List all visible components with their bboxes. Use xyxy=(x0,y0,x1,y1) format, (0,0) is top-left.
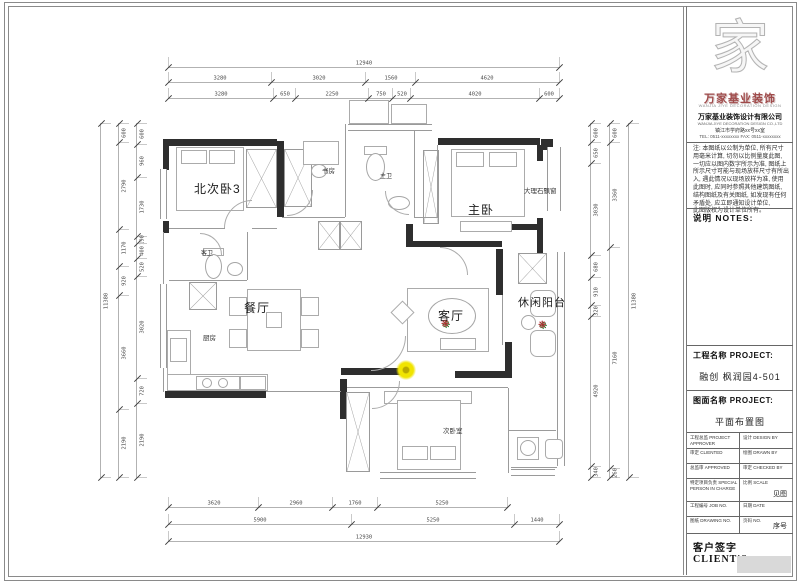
dim-left-total: 11380 xyxy=(100,123,111,478)
dim-segment: 1440 xyxy=(514,514,560,525)
dim-value: 5250 xyxy=(436,500,449,506)
stair-landing xyxy=(391,104,427,124)
dim-left-mid: 6002790117092036602190 xyxy=(118,123,129,478)
dim-value: 910 xyxy=(593,287,599,297)
dim-segment: 2790 xyxy=(118,142,129,229)
dim-segment: 600 xyxy=(590,123,601,142)
table-label: 审定 CLIENTED xyxy=(687,448,740,463)
scale-value: 见图 xyxy=(773,489,787,499)
dim-segment: 11380 xyxy=(628,123,639,478)
dim-segment: 3020 xyxy=(271,72,366,83)
toilet xyxy=(205,254,222,279)
dim-value: 340 xyxy=(593,467,599,477)
dim-value: 3020 xyxy=(312,75,325,81)
dim-segment: 3660 xyxy=(118,295,129,408)
plant-icon: ❋ xyxy=(538,321,546,331)
corner-gray-block xyxy=(737,556,791,573)
dim-value: 11380 xyxy=(103,292,109,308)
dim-value: 2190 xyxy=(139,434,145,447)
table-label: 审定 CHECKED BY xyxy=(740,463,793,478)
dim-value: 1560 xyxy=(384,75,397,81)
closet-xbox xyxy=(423,150,439,224)
bay-window xyxy=(547,147,561,211)
dim-segment: 3620 xyxy=(168,497,258,508)
dim-value: 3280 xyxy=(213,75,226,81)
dim-value: 600 xyxy=(121,128,127,138)
room-label-study: 书房 xyxy=(322,165,335,175)
chair xyxy=(301,329,319,348)
partition-line xyxy=(163,232,164,284)
project-name-value: 融创 枫润园4-501 xyxy=(687,370,793,383)
dim-segment: 2960 xyxy=(258,497,332,508)
dim-segment: 920 xyxy=(118,266,129,295)
dim-segment: 680 xyxy=(590,255,601,277)
dim-segment: 910 xyxy=(590,277,601,306)
dim-segment: 600 xyxy=(609,123,620,142)
dim-segment: 260 xyxy=(609,468,620,478)
room-label-guest-bath: 客卫 xyxy=(201,248,213,257)
dim-segment: 720 xyxy=(136,378,147,403)
title-table-row: 工程总监 PROJECT APPROVER 设计 DESIGN BY xyxy=(687,433,793,449)
drawing-name-value: 平面布置图 xyxy=(687,415,793,428)
dim-left-inner: 600960173019040052030207202190 xyxy=(136,123,147,478)
dim-segment: 5900 xyxy=(168,514,351,525)
dim-segment: 750 xyxy=(368,88,393,99)
dim-value: 7160 xyxy=(612,351,618,364)
table-label: 总监审 APPROVED xyxy=(687,463,740,478)
dim-right-total: 11380 xyxy=(628,123,639,478)
dim-value: 920 xyxy=(121,276,127,286)
plant-icon: ❋ xyxy=(441,320,449,330)
dim-segment: 4920 xyxy=(590,316,601,466)
dim-value: 3020 xyxy=(139,321,145,334)
page-no-value: 序号 xyxy=(773,521,787,531)
dim-value: 5250 xyxy=(426,517,439,523)
dim-value: 5900 xyxy=(253,517,266,523)
highlight-dot xyxy=(396,360,416,380)
dim-value: 720 xyxy=(139,386,145,396)
dim-value: 600 xyxy=(593,128,599,138)
dim-value: 260 xyxy=(612,468,618,478)
dim-bottom-total: 12930 xyxy=(168,531,560,542)
table-label: 比例 SCALE xyxy=(743,480,768,485)
dim-value: 2960 xyxy=(289,500,302,506)
burner xyxy=(202,378,212,388)
dim-segment: 2190 xyxy=(118,409,129,478)
dim-top-row2: 3280302015604620 xyxy=(168,72,560,83)
company-phone: TEL: 0511-xxxxxxxx FAX: 0511-xxxxxxxx xyxy=(687,134,793,139)
pillow xyxy=(489,152,517,167)
logo-brush-glyph: 家 xyxy=(687,16,793,80)
partition-line xyxy=(502,295,503,345)
wall-segment xyxy=(406,241,502,247)
dim-segment: 650 xyxy=(590,142,601,163)
closet-xbox xyxy=(346,392,370,472)
coffee-table xyxy=(440,338,476,350)
dim-segment: 340 xyxy=(590,466,601,478)
dim-segment: 4620 xyxy=(415,72,560,83)
wall-segment xyxy=(163,139,277,146)
table-label: 特定项目负责 SPECIAL PERSON IN CHARGE xyxy=(687,478,740,501)
dim-value: 650 xyxy=(593,148,599,158)
table-label: 绘图 DRAWN BY xyxy=(740,448,793,463)
bench xyxy=(460,221,512,232)
dim-segment: 4020 xyxy=(410,88,539,99)
dim-segment: 600 xyxy=(118,123,129,142)
dim-value: 4620 xyxy=(481,75,494,81)
dim-value: 1170 xyxy=(121,242,127,255)
cabinet-xbox xyxy=(189,282,217,310)
table-label: 比例 SCALE 见图 xyxy=(740,478,793,501)
dim-segment: 1170 xyxy=(118,229,129,266)
chair xyxy=(301,297,319,316)
divider xyxy=(687,142,793,143)
dim-value: 3660 xyxy=(121,346,127,359)
partition-line xyxy=(252,228,277,229)
sink xyxy=(545,439,563,459)
dim-segment: 1730 xyxy=(136,177,147,236)
wall-segment xyxy=(438,138,540,145)
dim-value: 2790 xyxy=(121,180,127,193)
room-label-kitchen: 厨房 xyxy=(203,332,216,342)
dim-value: 600 xyxy=(612,128,618,138)
partition-line xyxy=(282,217,345,218)
pillow xyxy=(402,446,428,460)
room-label-leisure-balcony: 休闲阳台 xyxy=(518,294,566,310)
room-label-master-bedroom: 主卧 xyxy=(468,201,494,218)
stair-landing xyxy=(349,100,389,124)
dim-value: 600 xyxy=(139,129,145,139)
dim-segment: 400 xyxy=(136,243,147,257)
dim-value: 1760 xyxy=(348,500,361,506)
dim-segment: 2250 xyxy=(295,88,368,99)
dim-value: 3030 xyxy=(593,203,599,216)
notes-line: 结构图纸及有关图纸, 如发现有任何 xyxy=(693,193,789,201)
sink xyxy=(227,262,243,276)
table-label: 设计 DESIGN BY xyxy=(740,433,793,448)
dim-value: 12940 xyxy=(356,60,372,66)
dim-segment: 520 xyxy=(392,88,410,99)
room-label-master-bath: 主卫 xyxy=(380,171,392,180)
room-label-second-bedroom: 次卧室 xyxy=(443,425,463,435)
partition-line xyxy=(247,232,248,280)
table-label: 工程总监 PROJECT APPROVER xyxy=(687,433,740,448)
company-name-en: WANJIA JIYE DECORATION DESIGN CO.,LTD xyxy=(687,121,793,126)
dim-value: 520 xyxy=(397,91,407,97)
burner xyxy=(218,378,228,388)
window xyxy=(160,169,167,219)
wall-segment xyxy=(163,146,169,170)
dim-value: 2190 xyxy=(121,437,127,450)
wall-segment xyxy=(277,141,284,217)
window xyxy=(380,472,476,479)
dim-right-mid: 60033607160260 xyxy=(609,123,620,478)
ac-unit-xbox xyxy=(518,253,547,284)
dim-segment: 650 xyxy=(273,88,295,99)
dim-value: 3620 xyxy=(207,500,220,506)
dim-segment: 3020 xyxy=(136,276,147,378)
dim-right-inner: 60065030306809103204920340 xyxy=(590,123,601,478)
dim-segment: 11380 xyxy=(100,123,111,478)
notes-line: 用毫米计算, 切勿以比例量度此图, xyxy=(693,154,789,162)
balcony-table xyxy=(521,315,536,330)
desk xyxy=(303,141,339,165)
title-table-row: 图纸 DRAWING NO. 页码 NO. 序号 xyxy=(687,516,793,534)
dim-value: 680 xyxy=(593,262,599,272)
dim-segment: 5250 xyxy=(377,497,508,508)
partition-line xyxy=(509,430,556,431)
dim-segment: 12930 xyxy=(168,531,560,542)
room-label-north-bedroom3: 北次卧3 xyxy=(194,180,241,197)
wall-segment xyxy=(455,371,512,378)
divider xyxy=(687,390,793,391)
dim-value: 2250 xyxy=(325,91,338,97)
dim-segment: 1560 xyxy=(365,72,414,83)
project-name-label: 工程名称 PROJECT: xyxy=(693,350,773,361)
dim-segment: 7160 xyxy=(609,247,620,468)
dim-value: 3280 xyxy=(215,91,228,97)
drawing-name-label: 图面名称 PROJECT: xyxy=(693,395,773,406)
dim-segment: 3360 xyxy=(609,142,620,246)
window xyxy=(511,469,555,476)
pillow xyxy=(181,150,207,164)
pillow xyxy=(456,152,484,167)
logo-caption: WANJIA JIYE DECORATION DESIGN xyxy=(687,103,793,108)
dim-segment: 600 xyxy=(136,123,147,144)
dim-value: 3360 xyxy=(612,189,618,202)
closet-xbox xyxy=(318,221,341,250)
notes-line: 此图时, 应同时参照其他建筑图纸, xyxy=(693,185,789,193)
wall-segment xyxy=(165,391,266,398)
washer-drum xyxy=(520,440,536,456)
partition-line xyxy=(163,368,164,392)
divider xyxy=(687,208,793,209)
notes-paragraph: 注: 本图纸以公制为单位, 所有尺寸用毫米计算, 切勿以比例量度此图,一切应以图… xyxy=(693,146,789,216)
dim-value: 1440 xyxy=(530,517,543,523)
dim-value: 1730 xyxy=(139,200,145,213)
balcony-chair xyxy=(530,330,556,357)
partition-line xyxy=(169,228,225,229)
dim-segment: 3280 xyxy=(168,88,273,99)
kitchen-sink xyxy=(170,338,187,362)
closet-xbox xyxy=(339,221,362,250)
dim-value: 520 xyxy=(139,262,145,272)
chair xyxy=(229,329,247,348)
pillow xyxy=(430,446,456,460)
table-label: 图纸 DRAWING NO. xyxy=(687,516,740,533)
dim-segment: 1760 xyxy=(332,497,376,508)
table-label: 页码 NO. 序号 xyxy=(740,516,793,533)
dim-top-row3: 328065022507505204020600 xyxy=(168,88,560,99)
title-table-row: 审定 CLIENTED 绘图 DRAWN BY xyxy=(687,448,793,464)
wall-segment xyxy=(496,249,503,295)
table-label: 工程编号 JOB NO. xyxy=(687,501,740,516)
dim-value: 12930 xyxy=(356,534,372,540)
dim-value: 960 xyxy=(139,156,145,166)
dim-value: 600 xyxy=(545,91,555,97)
dim-segment: 600 xyxy=(539,88,560,99)
partition-line xyxy=(511,467,557,468)
drawing-sheet: 北次卧3 主卧 大理石飘窗 书房 主卫 客卫 餐厅 厨房 客厅 休闲阳台 次卧室… xyxy=(0,0,800,584)
dim-segment: 5250 xyxy=(351,514,514,525)
dim-segment: 3280 xyxy=(168,72,271,83)
notes-header: 说明 NOTES: xyxy=(693,212,753,224)
partition-line xyxy=(266,391,341,392)
divider xyxy=(687,345,793,346)
window xyxy=(160,284,167,368)
room-label-dining: 餐厅 xyxy=(244,299,270,316)
partition-line xyxy=(414,131,415,217)
partition-line xyxy=(345,124,346,217)
notes-line: 入, 遇此情况以现场放样为准, 使用 xyxy=(693,177,789,185)
dim-segment: 3030 xyxy=(590,163,601,256)
pillow xyxy=(209,150,235,164)
dim-top-total: 12940 xyxy=(168,57,560,68)
table-label: 日期 DATE xyxy=(740,501,793,516)
dim-value: 750 xyxy=(376,91,386,97)
dim-value: 650 xyxy=(280,91,290,97)
table-label: 页码 NO. xyxy=(743,518,761,523)
company-address: 镇江市学府路xx号xx室 xyxy=(687,127,793,134)
notes-line: 注: 本图纸以公制为单位, 所有尺寸 xyxy=(693,146,789,154)
cabinet xyxy=(240,376,266,390)
dim-value: 4020 xyxy=(468,91,481,97)
partition-line xyxy=(169,280,247,281)
dim-value: 11380 xyxy=(631,292,637,308)
room-label-marble-bay-window: 大理石飘窗 xyxy=(524,185,557,195)
title-table-row: 工程编号 JOB NO. 日期 DATE xyxy=(687,501,793,517)
dim-value: 4920 xyxy=(593,385,599,398)
title-table-row: 特定项目负责 SPECIAL PERSON IN CHARGE 比例 SCALE… xyxy=(687,478,793,502)
dim-segment: 960 xyxy=(136,144,147,177)
balcony-window xyxy=(557,252,565,466)
dim-segment: 12940 xyxy=(168,57,560,68)
window xyxy=(348,124,432,131)
dim-segment: 2190 xyxy=(136,403,147,478)
title-table-row: 总监审 APPROVED 审定 CHECKED BY xyxy=(687,463,793,479)
dim-bottom-row2: 590052501440 xyxy=(168,514,560,525)
dim-bottom-row1: 3620296017605250 xyxy=(168,497,508,508)
title-block: 家 万家基业装饰 WANJIA JIYE DECORATION DESIGN 万… xyxy=(686,6,793,575)
